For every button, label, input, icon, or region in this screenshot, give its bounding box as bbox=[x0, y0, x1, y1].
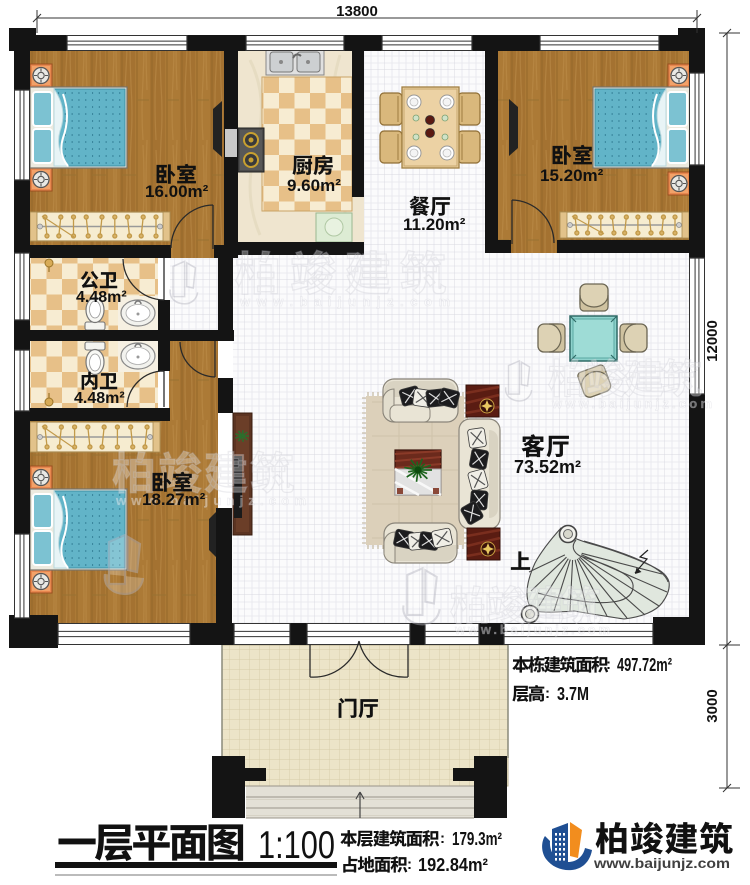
svg-text:1:100: 1:100 bbox=[258, 824, 335, 867]
svg-text:3.7M: 3.7M bbox=[557, 683, 589, 704]
svg-text:497.72m²: 497.72m² bbox=[617, 654, 672, 675]
svg-text:9.60m²: 9.60m² bbox=[287, 176, 341, 195]
svg-text:18.27m²: 18.27m² bbox=[142, 490, 206, 509]
svg-text:12000: 12000 bbox=[704, 320, 721, 362]
svg-text:www.baijunjz.com: www.baijunjz.com bbox=[593, 856, 730, 871]
svg-text::: : bbox=[407, 856, 412, 873]
svg-text:179.3m²: 179.3m² bbox=[452, 829, 502, 849]
svg-text:15.20m²: 15.20m² bbox=[540, 166, 604, 185]
svg-text::: : bbox=[545, 685, 550, 702]
svg-text:4.48m²: 4.48m² bbox=[74, 390, 125, 407]
svg-text:4.48m²: 4.48m² bbox=[76, 289, 127, 306]
svg-text:73.52m²: 73.52m² bbox=[514, 457, 581, 477]
svg-text:13800: 13800 bbox=[336, 3, 378, 20]
svg-text:11.20m²: 11.20m² bbox=[403, 215, 466, 234]
svg-text:16.00m²: 16.00m² bbox=[145, 182, 209, 201]
svg-text:3000: 3000 bbox=[704, 689, 721, 722]
svg-text:192.84m²: 192.84m² bbox=[418, 855, 488, 875]
svg-text::: : bbox=[606, 656, 611, 673]
svg-text::: : bbox=[440, 830, 445, 847]
